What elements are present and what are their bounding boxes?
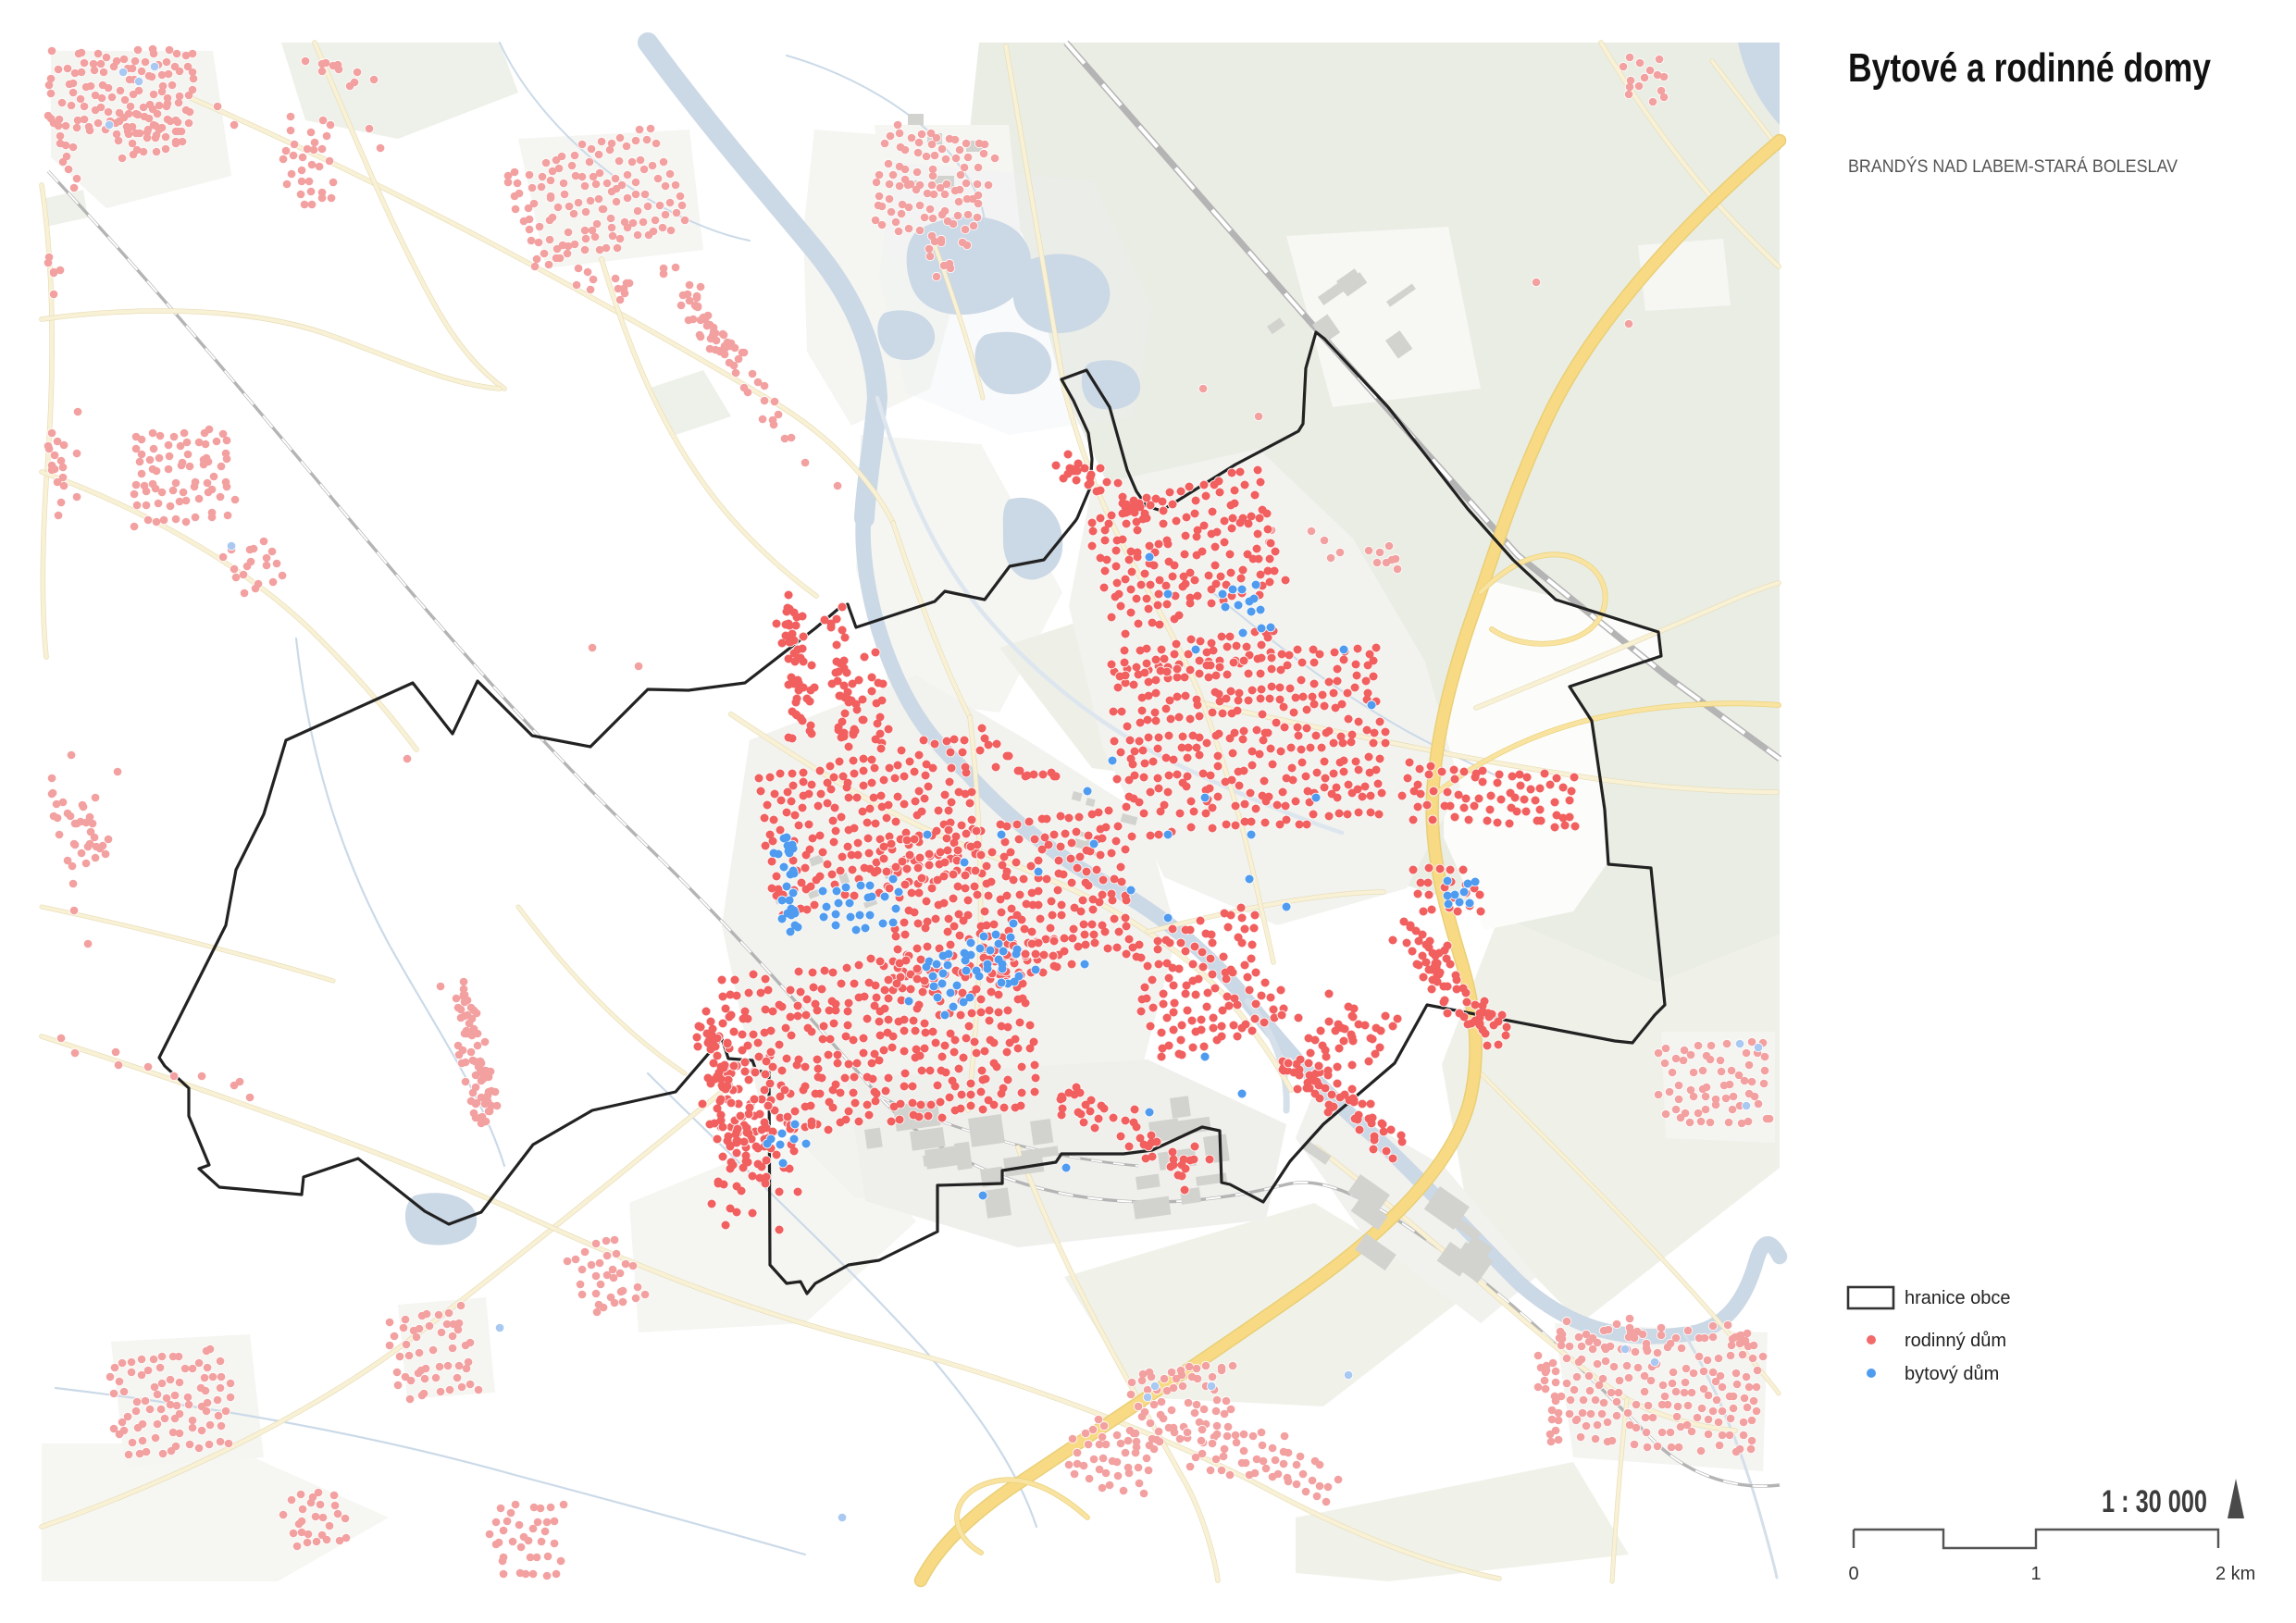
svg-text:bytový dům: bytový dům (1905, 1364, 1999, 1384)
svg-text:2 km: 2 km (2215, 1564, 2255, 1584)
svg-text:BRANDÝS NAD LABEM-STARÁ BOLESL: BRANDÝS NAD LABEM-STARÁ BOLESLAV (1848, 155, 2178, 177)
svg-text:rodinný dům: rodinný dům (1905, 1331, 2006, 1351)
svg-text:1: 1 (2030, 1564, 2041, 1584)
svg-text:1 : 30 000: 1 : 30 000 (2102, 1484, 2207, 1519)
svg-text:0: 0 (1848, 1564, 1858, 1584)
svg-text:Bytové a rodinné domy: Bytové a rodinné domy (1848, 45, 2211, 91)
svg-text:hranice obce: hranice obce (1905, 1288, 2011, 1308)
